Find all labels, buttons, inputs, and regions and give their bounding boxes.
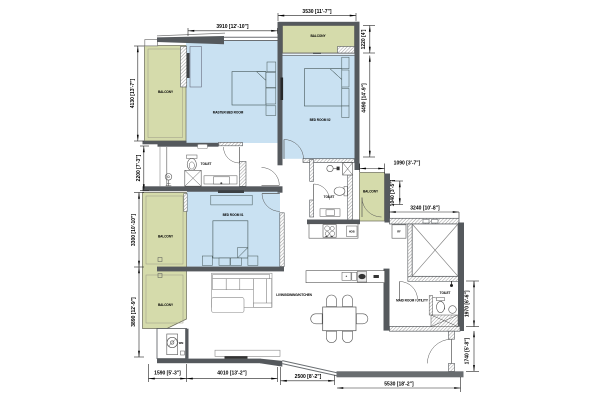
svg-text:3240 [10'-8"]: 3240 [10'-8"] <box>410 206 440 212</box>
svg-text:BALCONY: BALCONY <box>158 303 174 307</box>
svg-text:MASTER BED ROOM: MASTER BED ROOM <box>213 111 244 115</box>
svg-text:3300 [10'-10"]: 3300 [10'-10"] <box>131 214 137 247</box>
svg-text:TOILET: TOILET <box>324 195 335 199</box>
svg-text:4490 [14'-9"]: 4490 [14'-9"] <box>362 83 368 113</box>
svg-text:3530 [11'-7"]: 3530 [11'-7"] <box>302 9 331 15</box>
svg-text:1090 [3'-7"]: 1090 [3'-7"] <box>394 161 421 167</box>
svg-text:WM: WM <box>179 341 184 345</box>
svg-text:1740 [5'-8"]: 1740 [5'-8"] <box>465 337 471 364</box>
svg-text:TOILET: TOILET <box>201 162 212 166</box>
svg-text:BED ROOM 01: BED ROOM 01 <box>223 213 244 217</box>
svg-text:LIVING/DINING/KITCHEN: LIVING/DINING/KITCHEN <box>276 293 312 297</box>
svg-text:3890 [12'-9"]: 3890 [12'-9"] <box>131 297 137 327</box>
svg-text:BED ROOM 02: BED ROOM 02 <box>310 118 331 122</box>
svg-text:2200 [7'-3"]: 2200 [7'-3"] <box>136 154 142 181</box>
svg-text:TOILET: TOILET <box>440 291 451 295</box>
svg-text:BALCONY: BALCONY <box>310 34 326 38</box>
svg-text:BALCONY: BALCONY <box>158 90 174 94</box>
svg-text:HOB: HOB <box>349 230 355 234</box>
svg-text:4010 [13'-2"]: 4010 [13'-2"] <box>217 371 247 377</box>
svg-text:1220 [4']: 1220 [4'] <box>361 29 367 49</box>
svg-text:1040 [3'-5"]: 1040 [3'-5"] <box>390 179 396 206</box>
svg-text:1590 [5'-3"]: 1590 [5'-3"] <box>154 371 181 377</box>
svg-text:MAID ROOM / UTILITY: MAID ROOM / UTILITY <box>396 299 429 303</box>
svg-text:2500 [8'-2"]: 2500 [8'-2"] <box>295 374 322 380</box>
svg-text:5530 [18'-2"]: 5530 [18'-2"] <box>384 382 414 388</box>
svg-text:BALCONY: BALCONY <box>363 190 379 194</box>
svg-text:1970 [6'-6"]: 1970 [6'-6"] <box>465 290 471 317</box>
svg-text:RF: RF <box>397 230 401 234</box>
svg-text:4130 [13'-7"]: 4130 [13'-7"] <box>130 78 136 108</box>
svg-text:BALCONY: BALCONY <box>158 235 174 239</box>
svg-text:3910 [12'-10"]: 3910 [12'-10"] <box>216 24 249 30</box>
